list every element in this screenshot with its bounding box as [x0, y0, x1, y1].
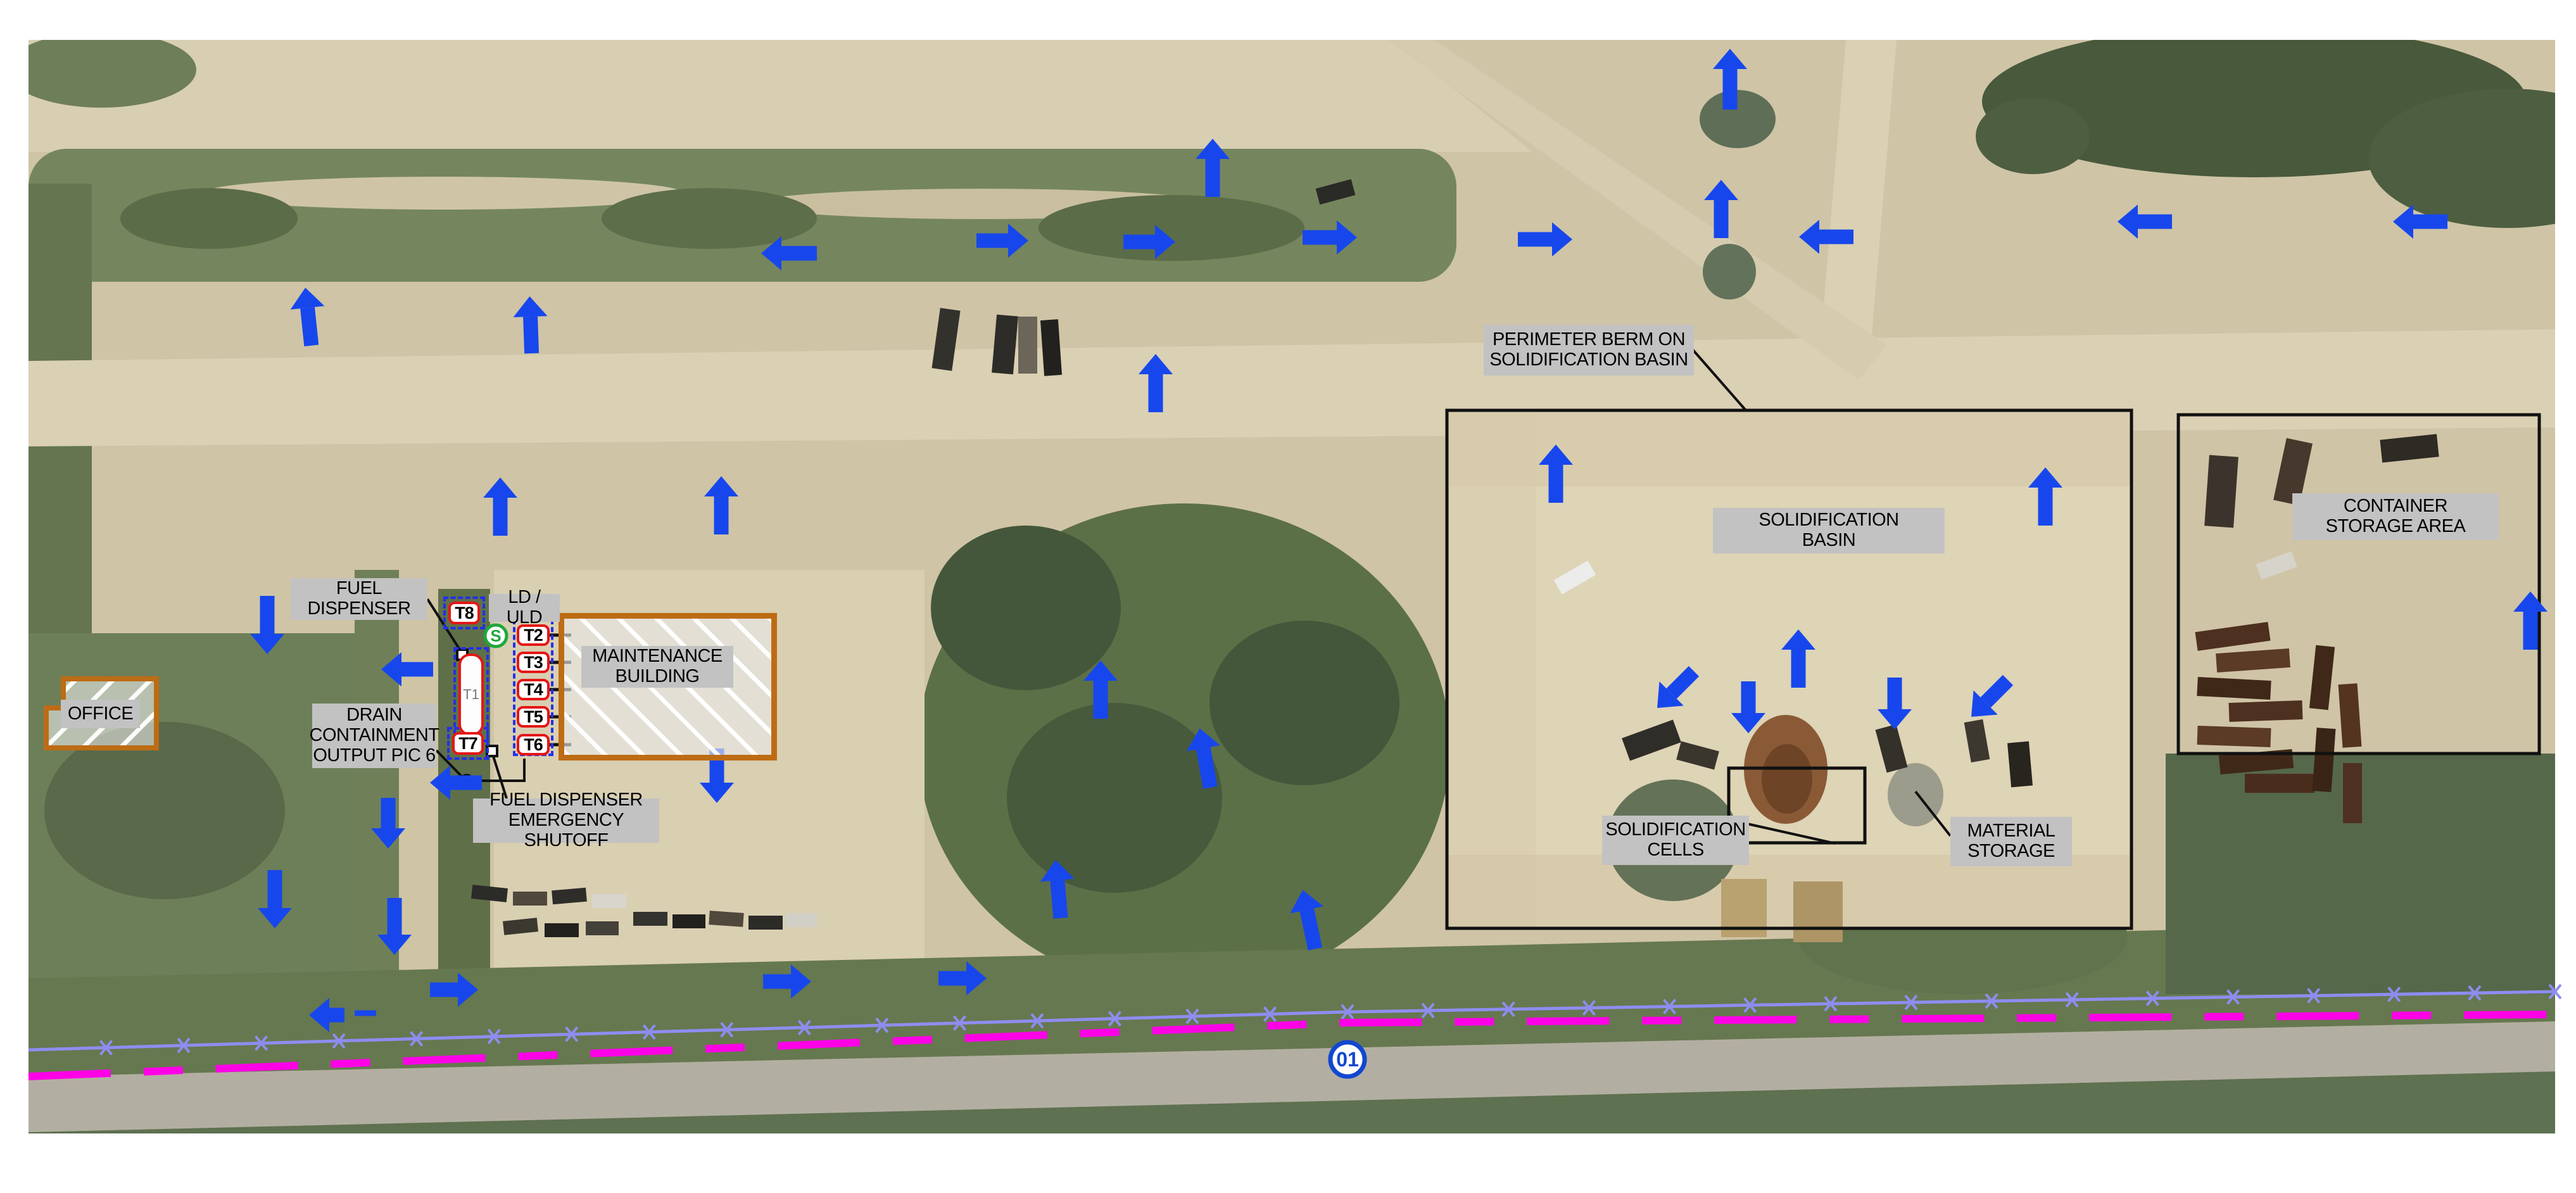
tank-t1: T1: [458, 653, 484, 736]
label-solidification-cells: SOLIDIFICATION CELLS: [1602, 816, 1749, 865]
label-office: OFFICE: [61, 700, 140, 728]
label-maintenance-building: MAINTENANCE BUILDING: [581, 646, 733, 688]
label-material-storage: MATERIAL STORAGE: [1950, 817, 2072, 866]
tank-marker-t7: T7: [452, 732, 484, 755]
label-container-storage-area: CONTAINER STORAGE AREA: [2292, 493, 2499, 540]
tank-marker-t4: T4: [517, 679, 550, 700]
label-solidification-basin: SOLIDIFICATION BASIN: [1713, 508, 1945, 553]
site-map-page: { "map": { "colors": { "arrow_blue": "#1…: [0, 0, 2576, 1193]
label-drain-containment: DRAIN CONTAINMENT OUTPUT PIC 6: [312, 704, 436, 768]
label-perimeter-berm: PERIMETER BERM ON SOLIDIFICATION BASIN: [1484, 325, 1694, 376]
label-fuel-dispenser: FUEL DISPENSER: [291, 578, 427, 620]
label-fuel-dispenser-emergency-shutoff: FUEL DISPENSER EMERGENCY SHUTOFF: [473, 798, 659, 843]
tank-marker-t8: T8: [448, 602, 480, 624]
label-ld-uld: LD / ULD: [489, 594, 560, 622]
annotation-labels: T1T8T7T2T3T4T5T6FUEL DISPENSERLD / ULDMA…: [0, 0, 2576, 1193]
tank-marker-t6: T6: [517, 734, 550, 755]
tank-marker-t5: T5: [517, 706, 550, 728]
tank-marker-t3: T3: [517, 652, 550, 673]
